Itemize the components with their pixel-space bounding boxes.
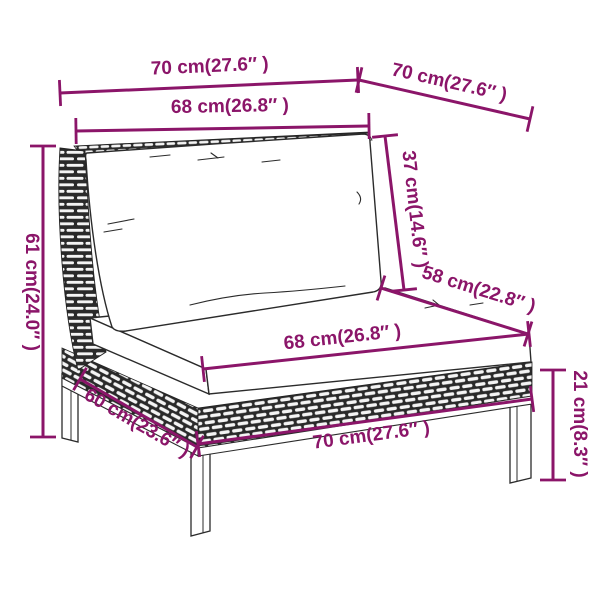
dimension-label: 70 cm(27.6″ ) — [389, 59, 509, 106]
dimension-leg-height: 21 cm(8.3″ ) — [540, 370, 590, 480]
leg-right — [510, 400, 531, 483]
dimension-label: 37 cm(14.6″ ) — [397, 150, 431, 270]
dimension-diagram-svg: 70 cm(27.6″ ) 70 cm(27.6″ ) 68 cm(26.8″ … — [0, 0, 600, 600]
dimension-backrest-height: 37 cm(14.6″ ) — [372, 135, 431, 292]
dimension-label: 21 cm(8.3″ ) — [569, 370, 590, 477]
dimension-label: 70 cm(27.6″ ) — [150, 53, 269, 79]
seat-crease — [470, 303, 483, 305]
dimension-overall-depth-top: 70 cm(27.6″ ) — [356, 59, 533, 131]
dimension-label: 61 cm(24.0″ ) — [21, 233, 42, 351]
leg-front-left — [191, 443, 210, 536]
dimension-label: 68 cm(26.8″ ) — [171, 95, 289, 118]
dimension-overall-height: 61 cm(24.0″ ) — [21, 146, 56, 437]
diagram-canvas: 70 cm(27.6″ ) 70 cm(27.6″ ) 68 cm(26.8″ … — [0, 0, 600, 600]
